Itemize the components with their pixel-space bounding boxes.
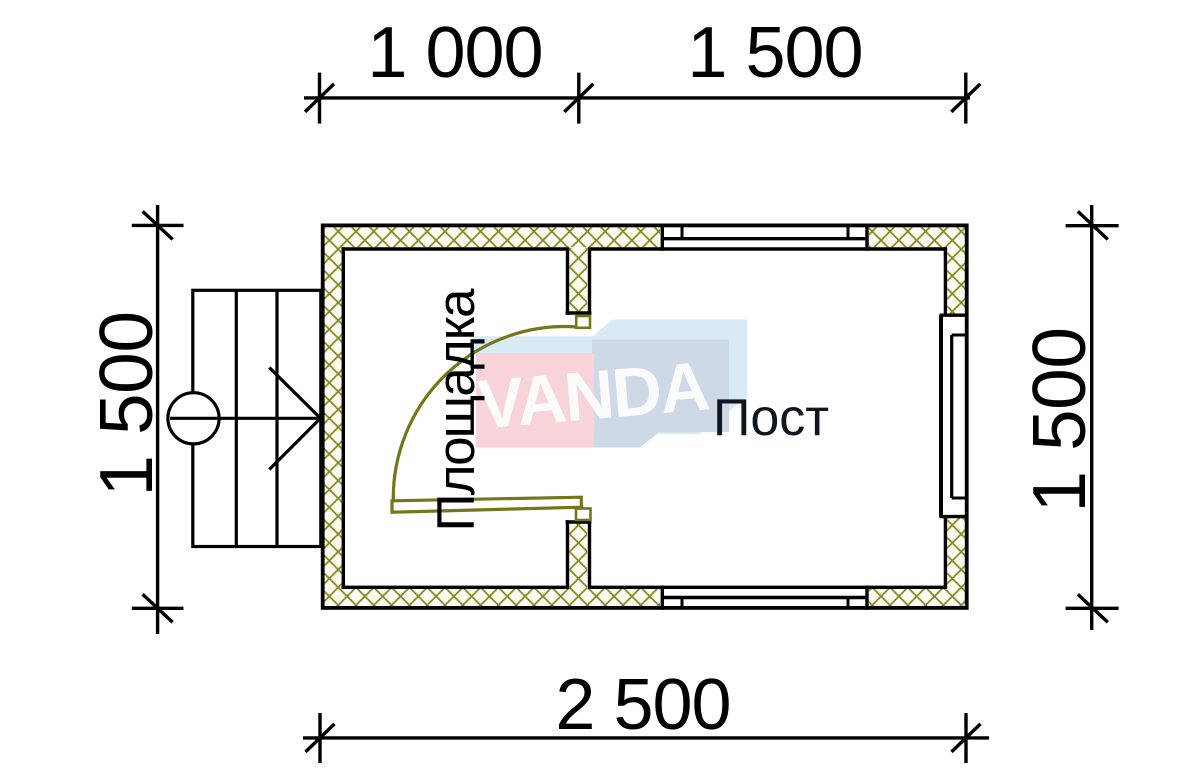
svg-text:1 500: 1 500 bbox=[687, 13, 862, 93]
svg-text:2 500: 2 500 bbox=[555, 665, 730, 745]
svg-text:Площадка: Площадка bbox=[427, 288, 486, 531]
svg-text:1 000: 1 000 bbox=[367, 13, 542, 93]
svg-text:Пост: Пост bbox=[713, 389, 829, 447]
svg-text:1 500: 1 500 bbox=[84, 311, 168, 496]
svg-text:1 500: 1 500 bbox=[1017, 327, 1101, 512]
